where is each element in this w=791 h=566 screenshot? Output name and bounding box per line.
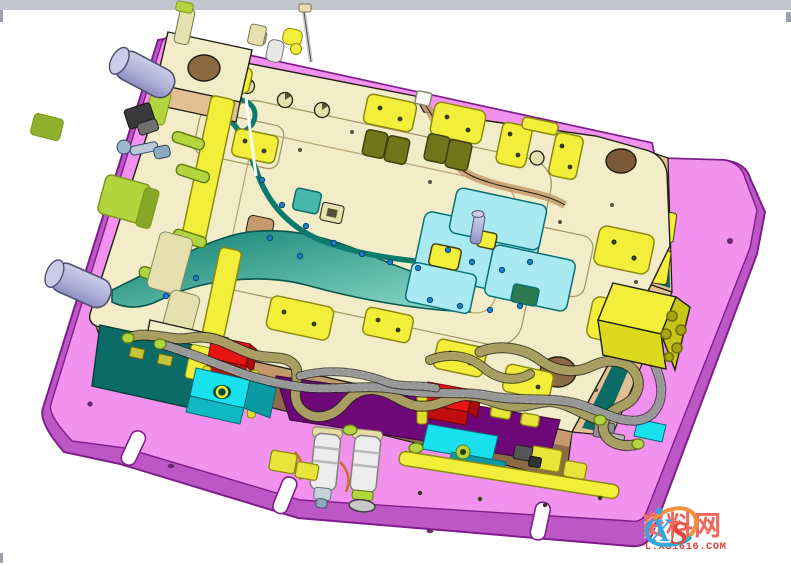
sprue-cylinder-white [265,39,285,64]
sprue-collar-yellow [282,27,304,47]
long-pin-edge [304,12,311,62]
locating-ring [291,44,302,55]
platform-fitting [157,354,173,367]
bracket [247,24,267,47]
logo-letter-s: S [670,516,688,552]
green-strip-pad [30,113,64,142]
guide-hole [188,55,220,81]
cad-application-viewport: X S 资料网 ZL.XS1616.COM [0,0,791,566]
post-cap [175,0,194,13]
knob [117,140,131,154]
watermark: X S 资料网 ZL.XS1616.COM [644,502,791,564]
watermark-logo: X S [644,502,700,554]
pin-cap [299,4,311,12]
platform-fitting [129,347,145,360]
mold-3d-view[interactable] [0,0,791,566]
guide-hole [606,149,636,173]
